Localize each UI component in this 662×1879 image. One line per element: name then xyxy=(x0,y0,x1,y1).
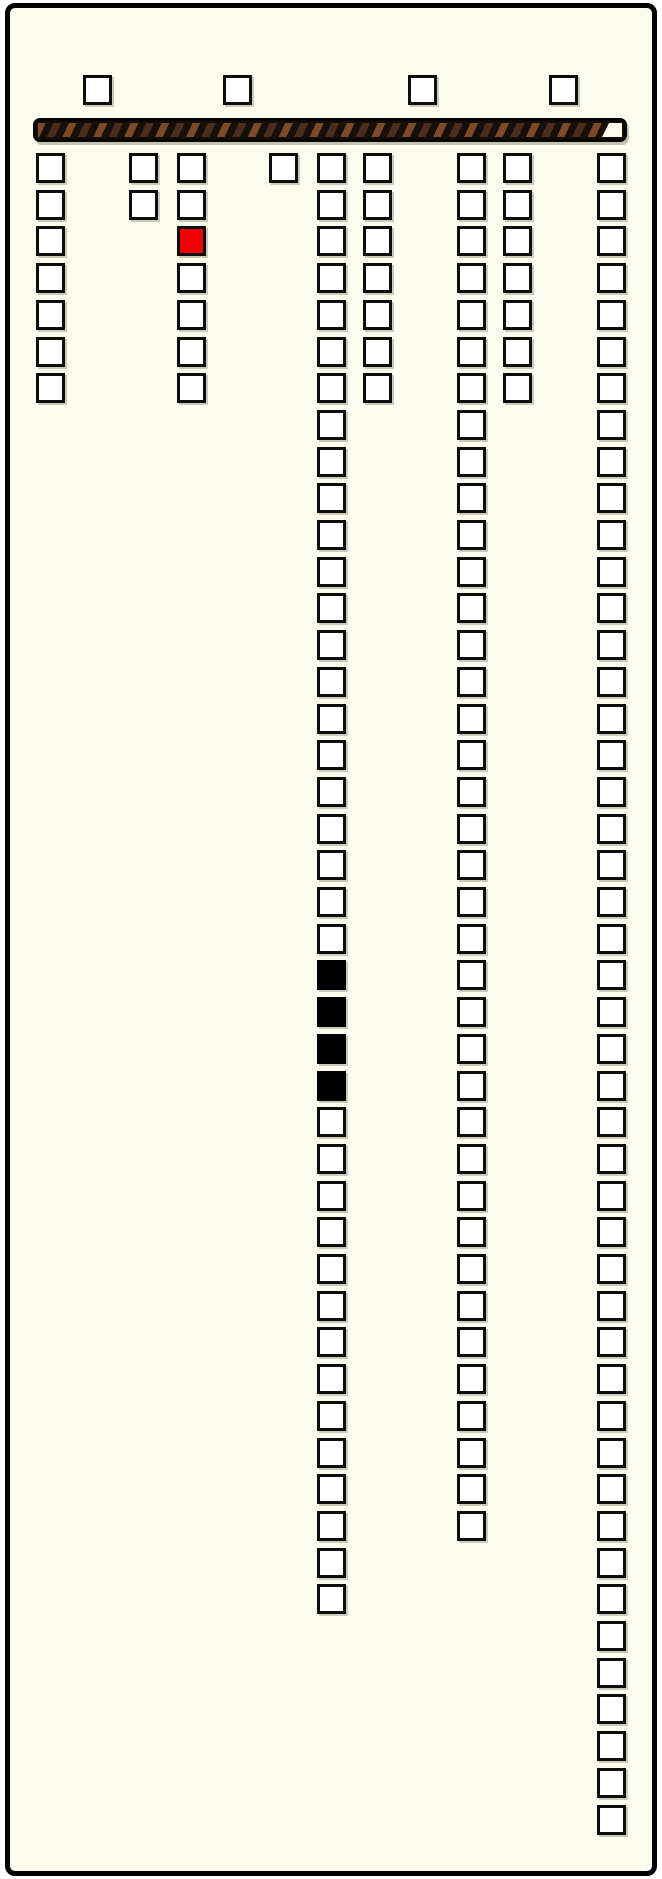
cell-col7-row36[interactable] xyxy=(457,1438,486,1468)
cell-col9-row23[interactable] xyxy=(597,960,626,990)
cell-col9-row44[interactable] xyxy=(597,1731,626,1761)
cell-col9-row15[interactable] xyxy=(597,667,626,697)
cell-col9-row4[interactable] xyxy=(597,263,626,293)
cell-col9-row37[interactable] xyxy=(597,1474,626,1504)
cell-col5-row34[interactable] xyxy=(317,1364,346,1394)
cell-col9-row1[interactable] xyxy=(597,153,626,183)
cell-col5-row28[interactable] xyxy=(317,1144,346,1174)
cell-col9-row31[interactable] xyxy=(597,1254,626,1284)
cell-col3-row3-red[interactable] xyxy=(177,226,206,256)
cell-col9-row13[interactable] xyxy=(597,593,626,623)
top-cell-2[interactable] xyxy=(223,75,252,105)
cell-col9-row28[interactable] xyxy=(597,1144,626,1174)
cell-col7-row26[interactable] xyxy=(457,1071,486,1101)
cell-col9-row35[interactable] xyxy=(597,1401,626,1431)
cell-col1-row6[interactable] xyxy=(36,337,65,367)
outer-frame xyxy=(5,3,657,1876)
cell-col5-row7[interactable] xyxy=(317,373,346,403)
cell-col7-row5[interactable] xyxy=(457,300,486,330)
striped-progress-bar xyxy=(33,118,627,142)
cell-col6-row5[interactable] xyxy=(363,300,392,330)
cell-col1-row7[interactable] xyxy=(36,373,65,403)
cell-col5-row1[interactable] xyxy=(317,153,346,183)
cell-col9-row12[interactable] xyxy=(597,557,626,587)
cell-col7-row9[interactable] xyxy=(457,447,486,477)
cell-col5-row32[interactable] xyxy=(317,1291,346,1321)
cell-col7-row10[interactable] xyxy=(457,483,486,513)
cell-col9-row25[interactable] xyxy=(597,1034,626,1064)
cell-col8-row2[interactable] xyxy=(503,190,532,220)
cell-col7-row25[interactable] xyxy=(457,1034,486,1064)
cell-col5-row37[interactable] xyxy=(317,1474,346,1504)
cell-col9-row3[interactable] xyxy=(597,226,626,256)
cell-col8-row1[interactable] xyxy=(503,153,532,183)
top-cell-3[interactable] xyxy=(408,75,437,105)
cell-col9-row9[interactable] xyxy=(597,447,626,477)
top-cell-1[interactable] xyxy=(83,75,112,105)
cell-col5-row21[interactable] xyxy=(317,887,346,917)
cell-col7-row24[interactable] xyxy=(457,997,486,1027)
cell-col5-row17[interactable] xyxy=(317,740,346,770)
cell-col9-row16[interactable] xyxy=(597,704,626,734)
cell-col7-row16[interactable] xyxy=(457,704,486,734)
cell-col5-row2[interactable] xyxy=(317,190,346,220)
cell-col9-row34[interactable] xyxy=(597,1364,626,1394)
cell-col5-row27[interactable] xyxy=(317,1107,346,1137)
cell-col9-row17[interactable] xyxy=(597,740,626,770)
cell-col9-row26[interactable] xyxy=(597,1071,626,1101)
cell-col9-row36[interactable] xyxy=(597,1438,626,1468)
cell-col7-row12[interactable] xyxy=(457,557,486,587)
cell-col7-row27[interactable] xyxy=(457,1107,486,1137)
cell-col5-row29[interactable] xyxy=(317,1181,346,1211)
cell-col5-row38[interactable] xyxy=(317,1511,346,1541)
cell-col5-row6[interactable] xyxy=(317,337,346,367)
cell-col7-row7[interactable] xyxy=(457,373,486,403)
cell-col7-row6[interactable] xyxy=(457,337,486,367)
cell-col2-row2[interactable] xyxy=(129,190,158,220)
cell-col9-row2[interactable] xyxy=(597,190,626,220)
cell-col7-row4[interactable] xyxy=(457,263,486,293)
cell-col9-row41[interactable] xyxy=(597,1621,626,1651)
cell-col4-row1[interactable] xyxy=(269,153,298,183)
cell-col5-row3[interactable] xyxy=(317,226,346,256)
cell-col7-row13[interactable] xyxy=(457,593,486,623)
cell-col7-row20[interactable] xyxy=(457,850,486,880)
cell-col6-row7[interactable] xyxy=(363,373,392,403)
cell-col5-row9[interactable] xyxy=(317,447,346,477)
cell-col9-row39[interactable] xyxy=(597,1548,626,1578)
cell-col5-row5[interactable] xyxy=(317,300,346,330)
cell-col8-row6[interactable] xyxy=(503,337,532,367)
top-cell-4[interactable] xyxy=(549,75,578,105)
cell-col9-row29[interactable] xyxy=(597,1181,626,1211)
cell-col7-row22[interactable] xyxy=(457,924,486,954)
cell-col9-row42[interactable] xyxy=(597,1658,626,1688)
cell-col5-row8[interactable] xyxy=(317,410,346,440)
cell-col9-row27[interactable] xyxy=(597,1107,626,1137)
cell-col8-row5[interactable] xyxy=(503,300,532,330)
cell-col5-row35[interactable] xyxy=(317,1401,346,1431)
cell-col7-row17[interactable] xyxy=(457,740,486,770)
cell-col7-row3[interactable] xyxy=(457,226,486,256)
cell-col5-row24-black[interactable] xyxy=(317,997,346,1027)
cell-col9-row46[interactable] xyxy=(597,1805,626,1835)
cell-col1-row3[interactable] xyxy=(36,226,65,256)
cell-col5-row26-black[interactable] xyxy=(317,1071,346,1101)
cell-col1-row2[interactable] xyxy=(36,190,65,220)
cell-col1-row4[interactable] xyxy=(36,263,65,293)
cell-col1-row5[interactable] xyxy=(36,300,65,330)
cell-col3-row6[interactable] xyxy=(177,337,206,367)
cell-col9-row20[interactable] xyxy=(597,850,626,880)
cell-col1-row1[interactable] xyxy=(36,153,65,183)
cell-col5-row20[interactable] xyxy=(317,850,346,880)
cell-col9-row22[interactable] xyxy=(597,924,626,954)
cell-col5-row15[interactable] xyxy=(317,667,346,697)
cell-col3-row7[interactable] xyxy=(177,373,206,403)
cell-col7-row1[interactable] xyxy=(457,153,486,183)
cell-col5-row36[interactable] xyxy=(317,1438,346,1468)
progress-bar-fill xyxy=(38,123,622,137)
cell-col5-row10[interactable] xyxy=(317,483,346,513)
cell-col9-row10[interactable] xyxy=(597,483,626,513)
cell-col3-row2[interactable] xyxy=(177,190,206,220)
cell-col5-row40[interactable] xyxy=(317,1584,346,1614)
cell-col8-row7[interactable] xyxy=(503,373,532,403)
cell-col7-row31[interactable] xyxy=(457,1254,486,1284)
cell-col7-row8[interactable] xyxy=(457,410,486,440)
page: { "canvas": {"width": 662, "height": 187… xyxy=(0,0,662,1879)
cell-col9-row18[interactable] xyxy=(597,777,626,807)
cell-col2-row1[interactable] xyxy=(129,153,158,183)
cell-col5-row4[interactable] xyxy=(317,263,346,293)
cell-col9-row8[interactable] xyxy=(597,410,626,440)
cell-col7-row29[interactable] xyxy=(457,1181,486,1211)
cell-col5-row31[interactable] xyxy=(317,1254,346,1284)
cell-col5-row22[interactable] xyxy=(317,924,346,954)
cell-col5-row19[interactable] xyxy=(317,814,346,844)
cell-col8-row4[interactable] xyxy=(503,263,532,293)
cell-col5-row11[interactable] xyxy=(317,520,346,550)
cell-col7-row21[interactable] xyxy=(457,887,486,917)
cell-col9-row32[interactable] xyxy=(597,1291,626,1321)
cell-col9-row7[interactable] xyxy=(597,373,626,403)
cell-col6-row4[interactable] xyxy=(363,263,392,293)
cell-col7-row30[interactable] xyxy=(457,1217,486,1247)
cell-col5-row13[interactable] xyxy=(317,593,346,623)
cell-col9-row38[interactable] xyxy=(597,1511,626,1541)
cell-col7-row35[interactable] xyxy=(457,1401,486,1431)
cell-col9-row11[interactable] xyxy=(597,520,626,550)
cell-col3-row5[interactable] xyxy=(177,300,206,330)
cell-col9-row14[interactable] xyxy=(597,630,626,660)
cell-col5-row25-black[interactable] xyxy=(317,1034,346,1064)
cell-col7-row2[interactable] xyxy=(457,190,486,220)
cell-col7-row18[interactable] xyxy=(457,777,486,807)
cell-col7-row15[interactable] xyxy=(457,667,486,697)
cell-col9-row43[interactable] xyxy=(597,1694,626,1724)
cell-col5-row16[interactable] xyxy=(317,704,346,734)
cell-col6-row2[interactable] xyxy=(363,190,392,220)
cell-col7-row37[interactable] xyxy=(457,1474,486,1504)
cell-col5-row23-black[interactable] xyxy=(317,960,346,990)
cell-col9-row40[interactable] xyxy=(597,1584,626,1614)
cell-col9-row33[interactable] xyxy=(597,1327,626,1357)
cell-col7-row23[interactable] xyxy=(457,960,486,990)
cell-col6-row1[interactable] xyxy=(363,153,392,183)
cell-col8-row3[interactable] xyxy=(503,226,532,256)
cell-col7-row38[interactable] xyxy=(457,1511,486,1541)
cell-col9-row5[interactable] xyxy=(597,300,626,330)
cell-col3-row4[interactable] xyxy=(177,263,206,293)
cell-col9-row19[interactable] xyxy=(597,814,626,844)
cell-col7-row19[interactable] xyxy=(457,814,486,844)
cell-col5-row18[interactable] xyxy=(317,777,346,807)
cell-col6-row3[interactable] xyxy=(363,226,392,256)
cell-col9-row21[interactable] xyxy=(597,887,626,917)
cell-col5-row33[interactable] xyxy=(317,1327,346,1357)
cell-col7-row28[interactable] xyxy=(457,1144,486,1174)
cell-col5-row30[interactable] xyxy=(317,1217,346,1247)
cell-col7-row11[interactable] xyxy=(457,520,486,550)
cell-col9-row45[interactable] xyxy=(597,1768,626,1798)
cell-col9-row24[interactable] xyxy=(597,997,626,1027)
cell-col9-row6[interactable] xyxy=(597,337,626,367)
cell-col7-row34[interactable] xyxy=(457,1364,486,1394)
cell-col7-row33[interactable] xyxy=(457,1327,486,1357)
cell-col3-row1[interactable] xyxy=(177,153,206,183)
cell-col7-row14[interactable] xyxy=(457,630,486,660)
cell-col5-row14[interactable] xyxy=(317,630,346,660)
cell-col6-row6[interactable] xyxy=(363,337,392,367)
cell-col5-row12[interactable] xyxy=(317,557,346,587)
cell-col5-row39[interactable] xyxy=(317,1548,346,1578)
cell-col9-row30[interactable] xyxy=(597,1217,626,1247)
cell-col7-row32[interactable] xyxy=(457,1291,486,1321)
